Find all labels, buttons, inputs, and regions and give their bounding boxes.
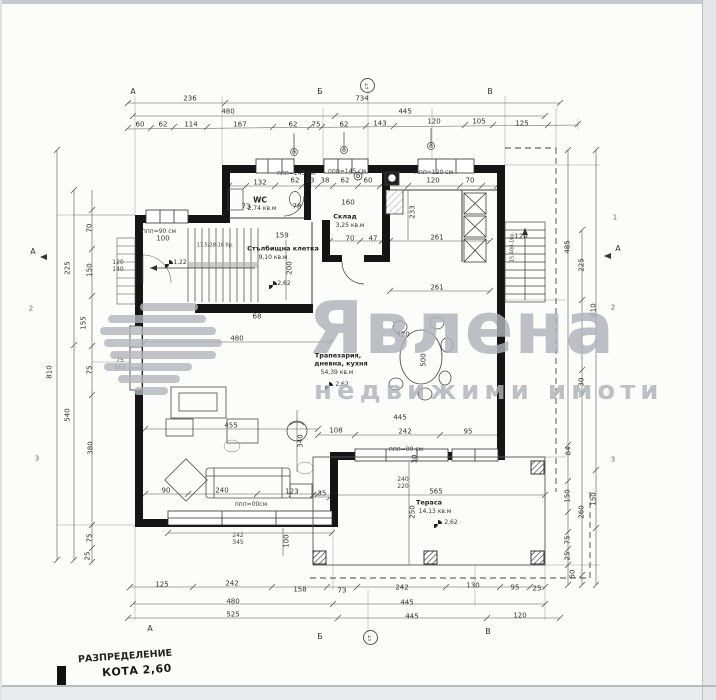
dim-label: 480 xyxy=(221,109,234,116)
scan-edge-right xyxy=(702,0,716,700)
dim-label: 60 xyxy=(136,122,145,129)
dim-label: 60 xyxy=(364,178,373,185)
dim-label: 445 xyxy=(398,109,411,116)
dim-label: 47 xyxy=(369,236,378,243)
dim-label: 485 xyxy=(565,240,572,253)
dim-label: 158 xyxy=(293,587,306,594)
dim-label: 734 xyxy=(355,96,368,103)
dim-label: 68 xyxy=(253,314,262,321)
scan-edge-top xyxy=(0,0,716,4)
dim-label: 480 xyxy=(226,599,239,606)
dim-label: 236 xyxy=(183,96,196,103)
dim-label: 75 xyxy=(87,366,94,375)
dim-label: 120 xyxy=(514,234,527,241)
stair-steps-note: 17,5/28-16 бр. xyxy=(197,244,234,249)
grid-col-v-top: В xyxy=(487,88,493,96)
dim-label: 150 xyxy=(565,489,572,502)
dim-label: 220 xyxy=(397,484,408,490)
room-living-area: 54,39 кв.м xyxy=(321,370,354,376)
dim-label: 62 xyxy=(341,178,350,185)
room-terrace-name: Тераса xyxy=(416,499,442,506)
dim-label: 70 xyxy=(87,224,94,233)
dim-label: 159 xyxy=(275,233,288,240)
dim-label: 62 xyxy=(289,122,298,129)
dim-label: 150 xyxy=(87,263,94,276)
level-mark-terrace: 2,62 xyxy=(444,520,457,526)
dim-label: 242 xyxy=(225,581,238,588)
grid-circle-top: ст xyxy=(360,78,375,93)
grid-col-a-bottom: А xyxy=(147,625,152,633)
dim-label: 70 xyxy=(346,236,355,243)
dim-label: 130 xyxy=(466,583,479,590)
dim-label: 75 xyxy=(87,534,94,543)
window-label-120: ппп=120 см xyxy=(415,170,453,176)
level-mark-stair-mid: 1,22 xyxy=(173,260,186,266)
dim-label: 445 xyxy=(393,415,406,422)
labels-layer: А Б В ст А Б В ст 1 2 3 2 3 А А ппп=145 … xyxy=(0,0,716,700)
scan-edge-bottom xyxy=(0,687,716,700)
grid-circle-top-label: ст xyxy=(364,82,370,88)
dim-label: 150 xyxy=(591,492,598,505)
dim-label: 261 xyxy=(430,285,443,292)
dim-label: 500 xyxy=(421,353,428,366)
dim-label: 125 xyxy=(515,121,528,128)
grid-row-3-right: 3 xyxy=(611,457,615,464)
dim-label: 30 xyxy=(412,455,419,464)
dim-label: 200 xyxy=(287,261,294,274)
grid-row-1-right: 1 xyxy=(613,215,617,222)
dim-label: 155 xyxy=(81,316,88,329)
dim-label: 167 xyxy=(233,122,246,129)
section-marker-right: А xyxy=(615,245,620,253)
dim-label: 250 xyxy=(410,505,417,518)
dim-label: 261 xyxy=(430,235,443,242)
scan-edge-left xyxy=(0,0,2,700)
dim-label: 120 xyxy=(426,178,439,185)
grid-col-a-top: А xyxy=(130,88,135,96)
dim-label: 340 xyxy=(298,434,305,447)
scanned-floor-plan-page: А Б В ст А Б В ст 1 2 3 2 3 А А ппп=145 … xyxy=(0,0,716,700)
grid-circle-bottom-label: ст xyxy=(367,634,373,640)
dim-label: 380 xyxy=(88,441,95,454)
dim-label: 38 xyxy=(321,178,330,185)
dim-label: 25 xyxy=(565,552,572,561)
window-label-145b: ппп=145 см xyxy=(328,169,366,175)
room-terrace-area: 14,13 кв.м xyxy=(419,509,452,515)
dim-label: 23 xyxy=(306,178,315,185)
grid-col-b-bottom: Б xyxy=(317,633,323,641)
room-storage-area: 3,25 кв.м xyxy=(336,223,365,229)
level-mark-stair-top: 2,62 xyxy=(277,281,290,287)
dim-label: 50 xyxy=(570,570,577,579)
dim-label: 90 xyxy=(162,488,171,495)
window-label-00b: ппп=00 см xyxy=(389,447,423,453)
dim-label: 445 xyxy=(405,614,418,621)
dim-label: 480 xyxy=(230,336,243,343)
room-stairwell-area: 9,10 кв.м xyxy=(259,255,288,261)
dim-label: 810 xyxy=(591,303,598,316)
dim-label: 78 xyxy=(293,204,302,211)
dim-label: 345 xyxy=(232,540,243,546)
dim-label: 62 xyxy=(291,178,300,185)
dim-label: 123 xyxy=(285,489,298,496)
dim-label: 810 xyxy=(47,365,54,378)
dim-label: 108 xyxy=(329,428,342,435)
dim-label: 565 xyxy=(429,489,442,496)
dim-label: 445 xyxy=(400,600,413,607)
section-marker-left: А xyxy=(30,248,35,256)
dim-label: 73 xyxy=(242,204,251,211)
dim-label: 140 xyxy=(112,267,123,273)
dim-label: 233 xyxy=(410,205,417,218)
dim-label: 70 xyxy=(466,178,475,185)
grid-row-2-left: 2 xyxy=(29,306,33,313)
grid-row-2-right: 2 xyxy=(611,305,615,312)
dim-label: 540 xyxy=(65,408,72,421)
dim-label: 120 xyxy=(513,613,526,620)
dim-label: 30 xyxy=(579,378,586,387)
grid-circle-bottom: ст xyxy=(363,630,378,645)
dim-label: 225 xyxy=(65,261,72,274)
dim-label: 242 xyxy=(398,429,411,436)
dim-label: 100 xyxy=(156,236,169,243)
room-stairwell-name: Стълбищна клетка xyxy=(247,245,319,252)
dim-label: 75 xyxy=(312,122,321,129)
room-living-name-2: дневна, кухня xyxy=(314,360,367,367)
grid-col-v-bottom: В xyxy=(485,628,491,636)
dim-label: 25 xyxy=(85,552,92,561)
scan-edge-bottom-line xyxy=(0,685,716,687)
grid-row-3-left: 3 xyxy=(35,456,39,463)
dim-label: 163 xyxy=(114,365,125,371)
dim-label: 132 xyxy=(253,180,266,187)
dim-label: 62 xyxy=(340,122,349,129)
dim-label: 95 xyxy=(511,585,520,592)
dim-label: 525 xyxy=(226,612,239,619)
dim-label: 455 xyxy=(224,423,237,430)
dim-label: 105 xyxy=(472,119,485,126)
dim-label: 100 xyxy=(284,534,291,547)
dim-label: 62 xyxy=(159,122,168,129)
room-wc-area: 2,74 кв.м xyxy=(248,206,277,212)
dim-label: 225 xyxy=(579,258,586,271)
window-label-00a: ппп=00см xyxy=(235,502,267,508)
dim-label: 242 xyxy=(395,585,408,592)
level-mark-living: 2,62 xyxy=(335,382,348,388)
dim-label: 95 xyxy=(464,429,473,436)
dim-label: 84 xyxy=(566,447,573,456)
dim-label: 73 xyxy=(338,588,347,595)
room-storage-name: Склад xyxy=(333,213,357,220)
dim-label: 25 xyxy=(533,586,542,593)
dim-label: 143 xyxy=(373,121,386,128)
dim-label: 260 xyxy=(579,505,586,518)
grid-col-b-top: Б xyxy=(317,88,323,96)
dim-label: 420 xyxy=(396,332,409,339)
dim-label: 125 xyxy=(155,582,168,589)
dim-label: 35 xyxy=(318,491,327,498)
dim-label: 75 xyxy=(565,536,572,545)
dim-label: 114 xyxy=(184,122,197,129)
dim-label: 240 xyxy=(215,488,228,495)
dim-label: 120 xyxy=(427,119,440,126)
dim-label: 160 xyxy=(341,200,354,207)
